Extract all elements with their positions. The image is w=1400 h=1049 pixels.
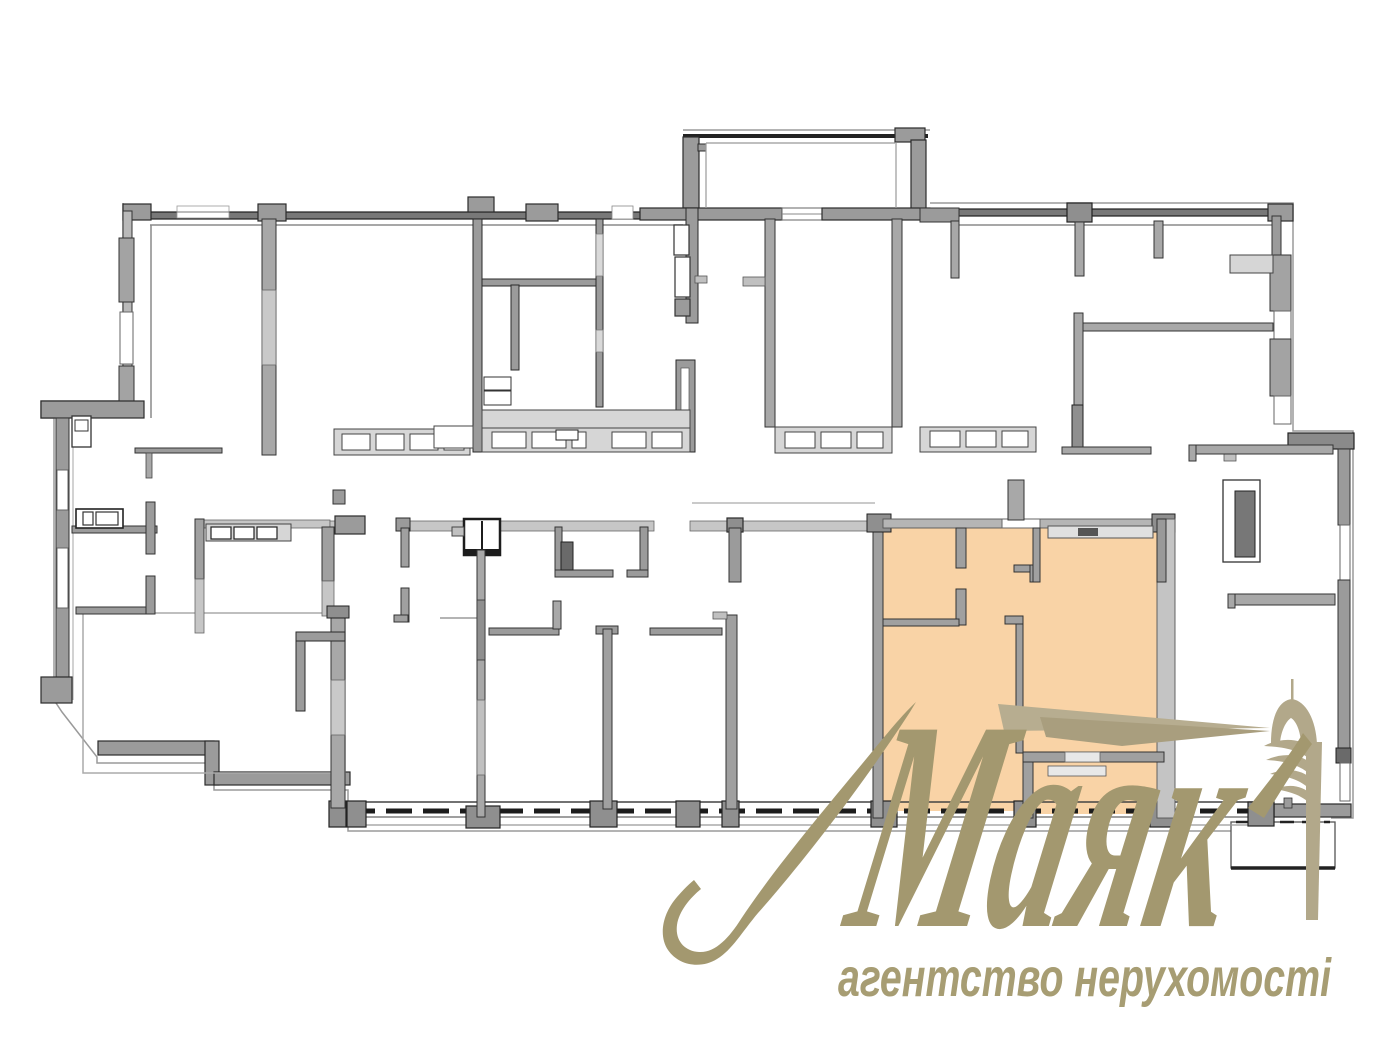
svg-text:Маяк: Маяк bbox=[826, 658, 1277, 991]
svg-text:агентство нерухомості: агентство нерухомості bbox=[838, 948, 1332, 1008]
